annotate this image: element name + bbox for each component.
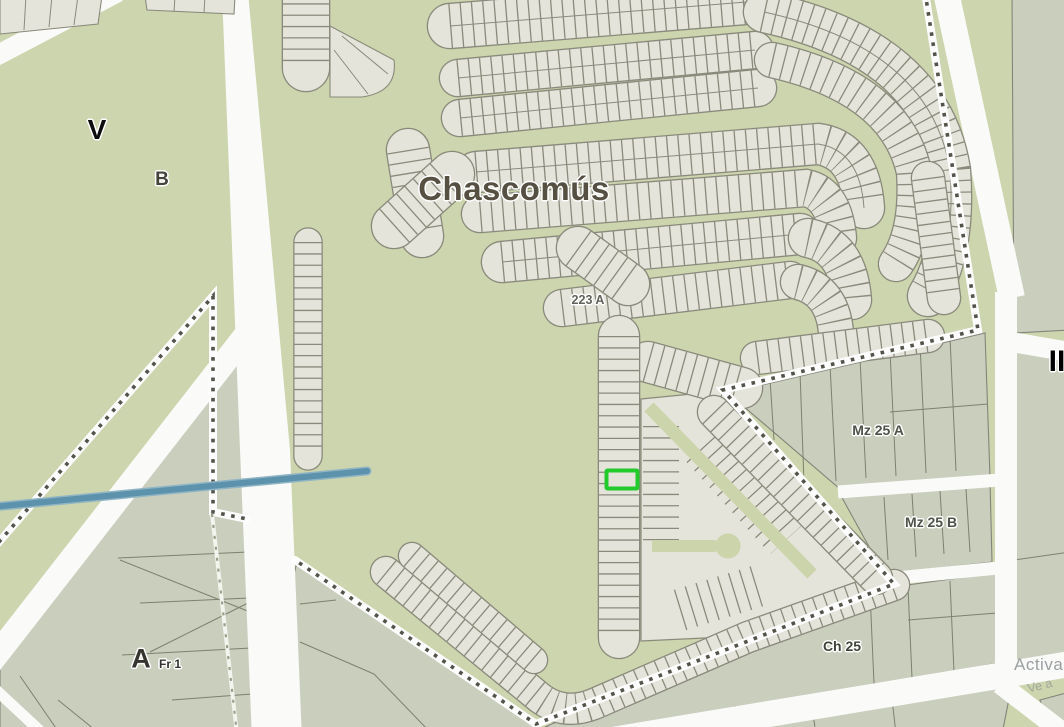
label-fr-1: Fr 1 xyxy=(159,657,181,671)
map-graphics xyxy=(0,0,1064,727)
label-mz-25-b: Mz 25 B xyxy=(905,514,957,530)
label-zone-b: B xyxy=(155,169,169,191)
cul-de-sac-circle xyxy=(716,534,741,559)
label-zone-ii: II xyxy=(1049,345,1064,379)
label-parcel-223a: 223 A xyxy=(572,293,605,307)
highlighted-parcel[interactable] xyxy=(607,471,638,489)
label-zone-a: A xyxy=(131,644,151,675)
label-zone-v: V xyxy=(88,114,107,146)
map-canvas[interactable]: ChascomúsVB223 AMz 25 AMz 25 BCh 25AFr 1… xyxy=(0,0,1064,727)
label-mz-25-a: Mz 25 A xyxy=(852,422,904,438)
label-city: Chascomús xyxy=(418,170,610,208)
label-ch-25: Ch 25 xyxy=(823,638,861,654)
